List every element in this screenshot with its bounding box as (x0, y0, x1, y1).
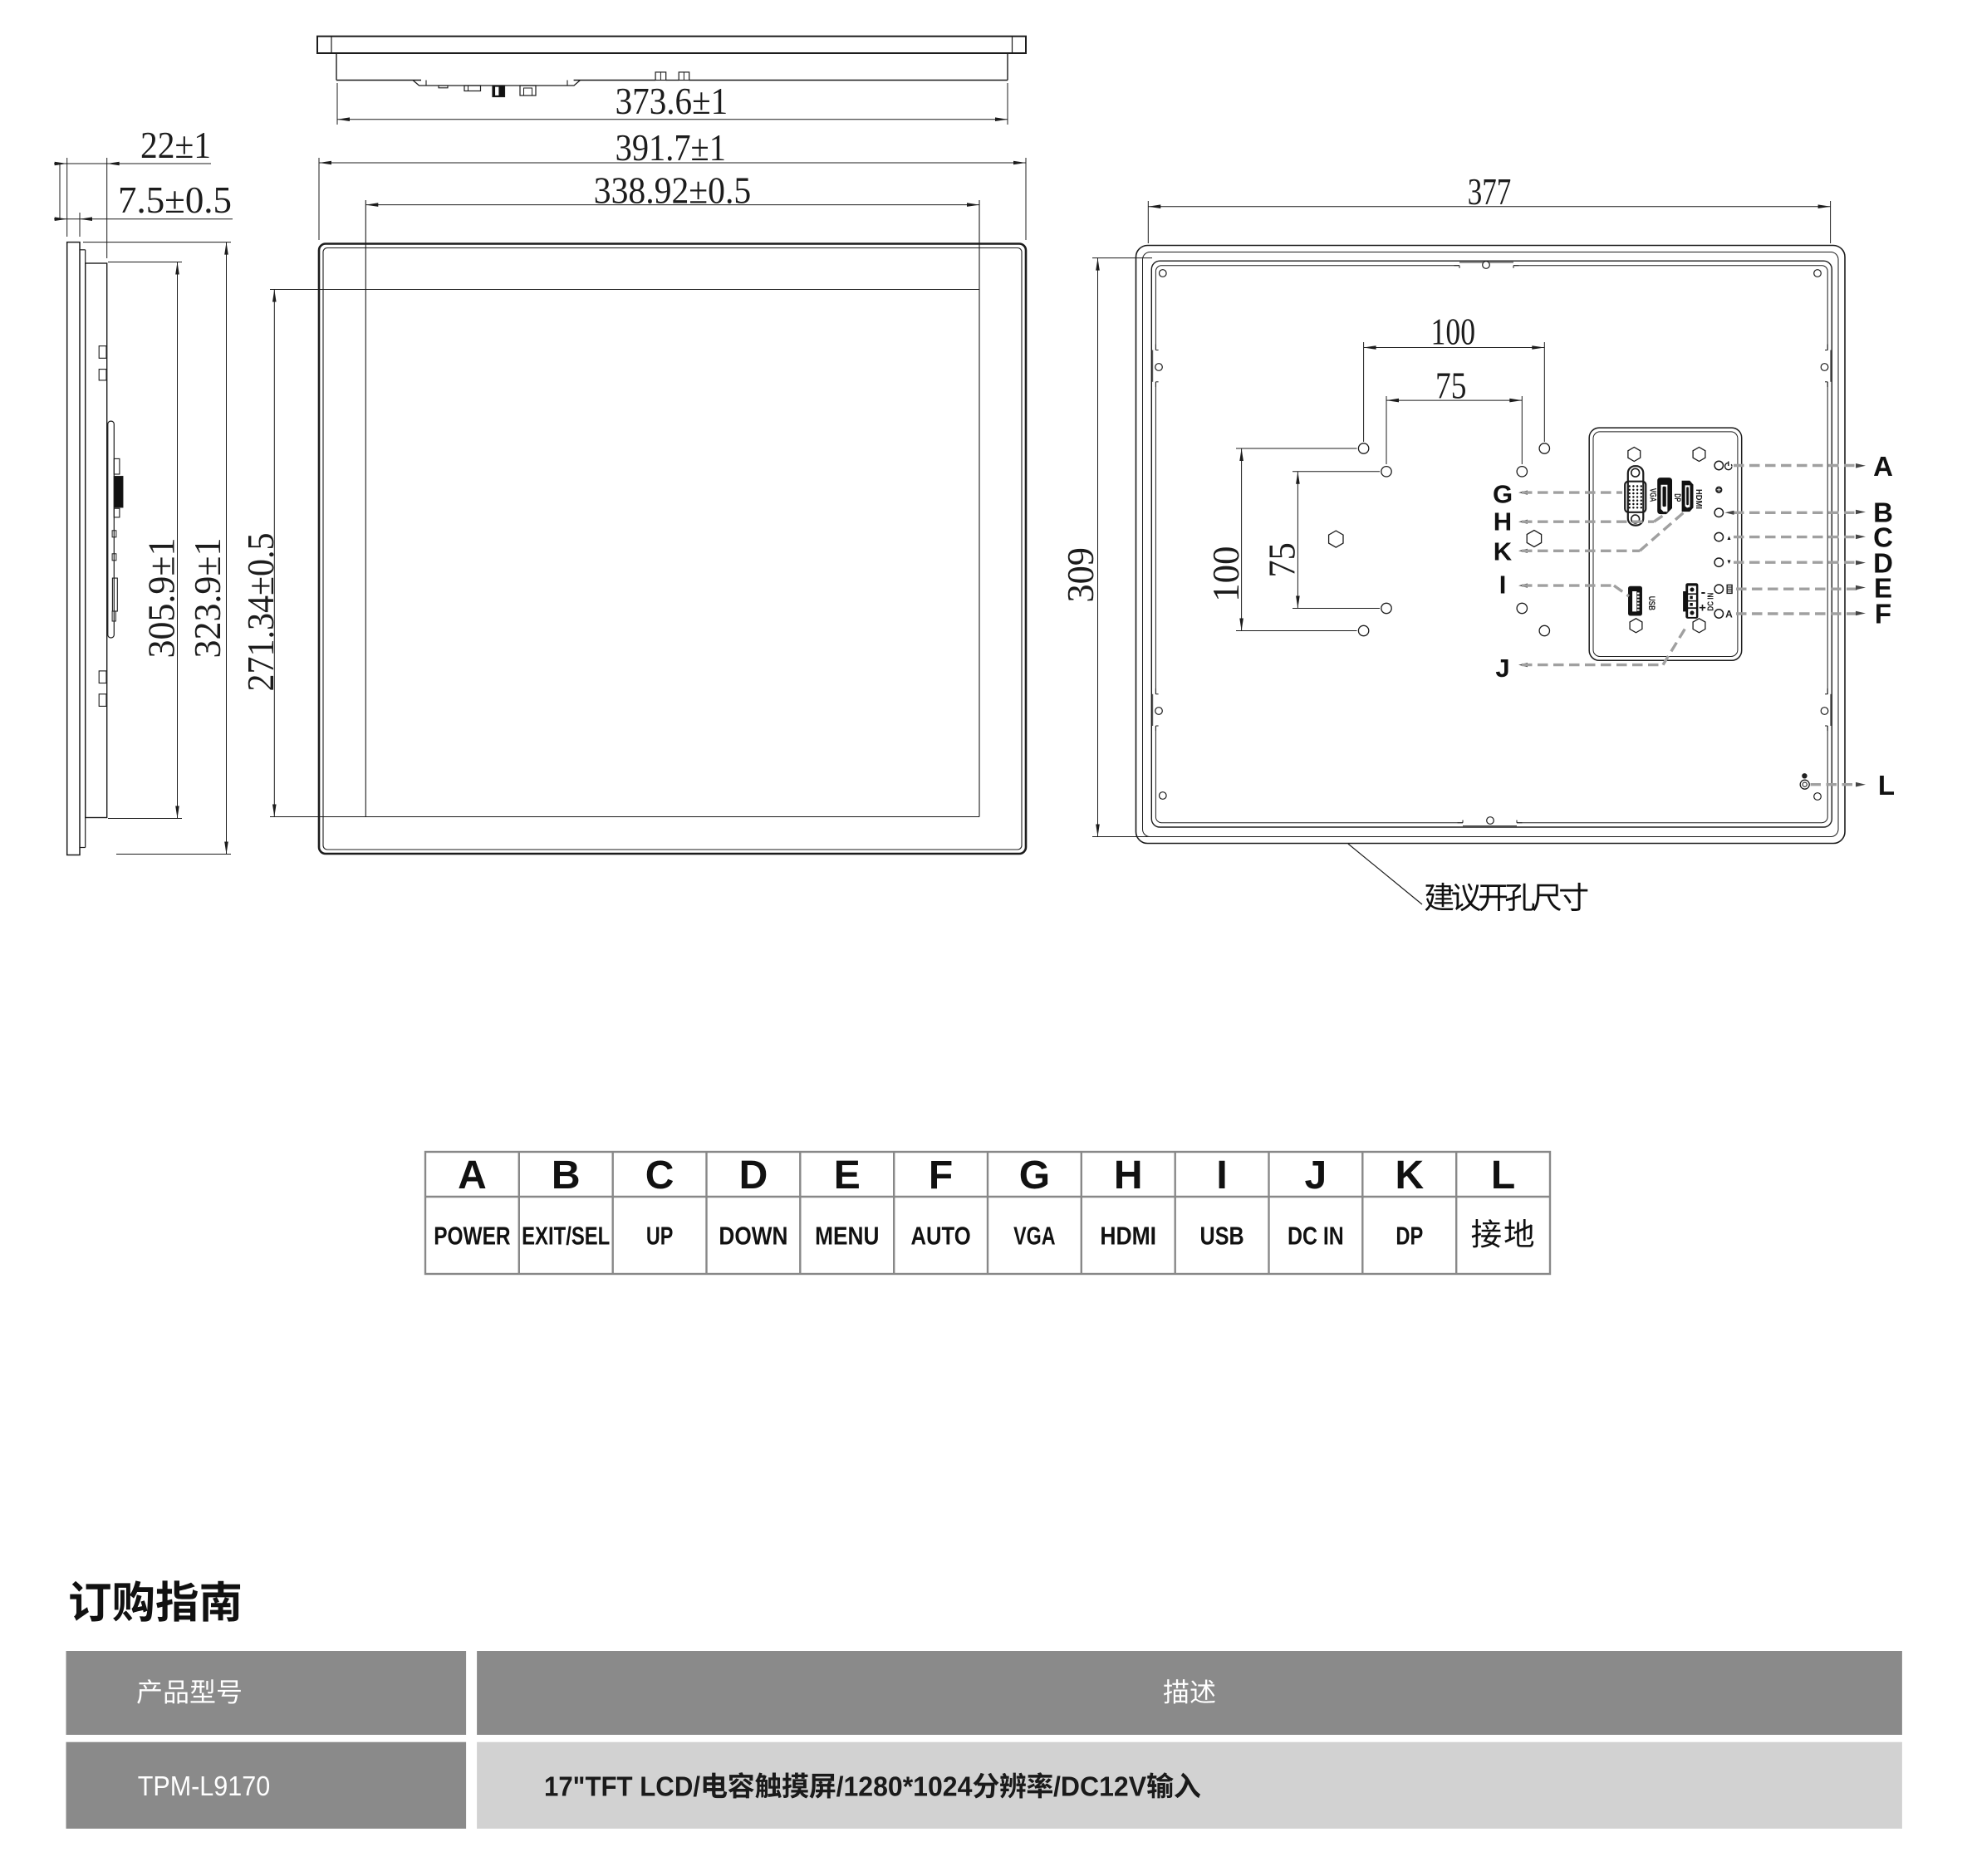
svg-text:AUTO: AUTO (911, 1222, 971, 1251)
svg-text:A: A (1873, 451, 1893, 482)
svg-text:391.7±1: 391.7±1 (616, 126, 726, 169)
svg-text:POWER: POWER (434, 1222, 510, 1251)
svg-text:HDMI: HDMI (1100, 1222, 1156, 1251)
svg-text:100: 100 (1204, 546, 1247, 601)
svg-text:I: I (1499, 571, 1507, 600)
svg-text:271.34±0.5: 271.34±0.5 (239, 533, 282, 692)
svg-text:F: F (1875, 599, 1891, 629)
svg-text:H: H (1114, 1154, 1143, 1198)
svg-text:USB: USB (1200, 1222, 1244, 1251)
svg-text:L: L (1491, 1154, 1515, 1198)
svg-text:USB: USB (1646, 596, 1656, 610)
svg-text:22±1: 22±1 (140, 124, 211, 166)
svg-text:/1280*1024: /1280*1024 (836, 1771, 973, 1802)
svg-text:B: B (552, 1154, 581, 1198)
svg-text:/DC12V: /DC12V (1053, 1771, 1146, 1802)
svg-text:323.9±1: 323.9±1 (186, 538, 228, 659)
svg-text:DP: DP (1672, 493, 1682, 502)
svg-text:F: F (929, 1154, 953, 1198)
svg-text:DC IN: DC IN (1706, 593, 1716, 611)
svg-text:H: H (1494, 507, 1512, 536)
svg-text:J: J (1305, 1154, 1327, 1198)
svg-text:305.9±1: 305.9±1 (140, 538, 183, 659)
svg-text:75: 75 (1435, 365, 1466, 407)
svg-text:373.6±1: 373.6±1 (616, 80, 728, 122)
svg-text:309: 309 (1059, 547, 1101, 602)
svg-text:75: 75 (1261, 542, 1303, 577)
svg-text:L: L (1878, 770, 1895, 801)
svg-text:100: 100 (1431, 311, 1476, 353)
svg-text:7.5±0.5: 7.5±0.5 (118, 179, 232, 221)
svg-text:A: A (458, 1154, 487, 1198)
svg-text:C: C (645, 1154, 674, 1198)
svg-text:D: D (739, 1154, 768, 1198)
svg-text:377: 377 (1468, 170, 1512, 213)
svg-text:17"TFT LCD/: 17"TFT LCD/ (544, 1771, 700, 1802)
svg-text:HDMI: HDMI (1694, 489, 1703, 509)
svg-text:338.92±0.5: 338.92±0.5 (594, 169, 752, 212)
svg-text:VGA: VGA (1647, 488, 1657, 502)
svg-text:G: G (1019, 1154, 1050, 1198)
svg-text:DC IN: DC IN (1288, 1222, 1344, 1251)
svg-text:EXIT/SEL: EXIT/SEL (522, 1222, 610, 1251)
svg-text:TPM-L9170: TPM-L9170 (138, 1771, 271, 1801)
svg-text:A: A (1725, 609, 1733, 620)
svg-text:K: K (1494, 536, 1513, 566)
svg-text:VGA: VGA (1013, 1222, 1056, 1251)
svg-text:E: E (834, 1154, 861, 1198)
svg-text:I: I (1216, 1154, 1227, 1198)
svg-text:K: K (1395, 1154, 1424, 1198)
svg-text:UP: UP (646, 1222, 674, 1251)
svg-text:MENU: MENU (815, 1222, 879, 1251)
svg-text:-: - (1701, 585, 1706, 600)
svg-text:J: J (1495, 654, 1509, 683)
svg-text:G: G (1493, 479, 1513, 508)
svg-text:DOWN: DOWN (719, 1222, 787, 1251)
svg-text:DP: DP (1396, 1222, 1423, 1251)
